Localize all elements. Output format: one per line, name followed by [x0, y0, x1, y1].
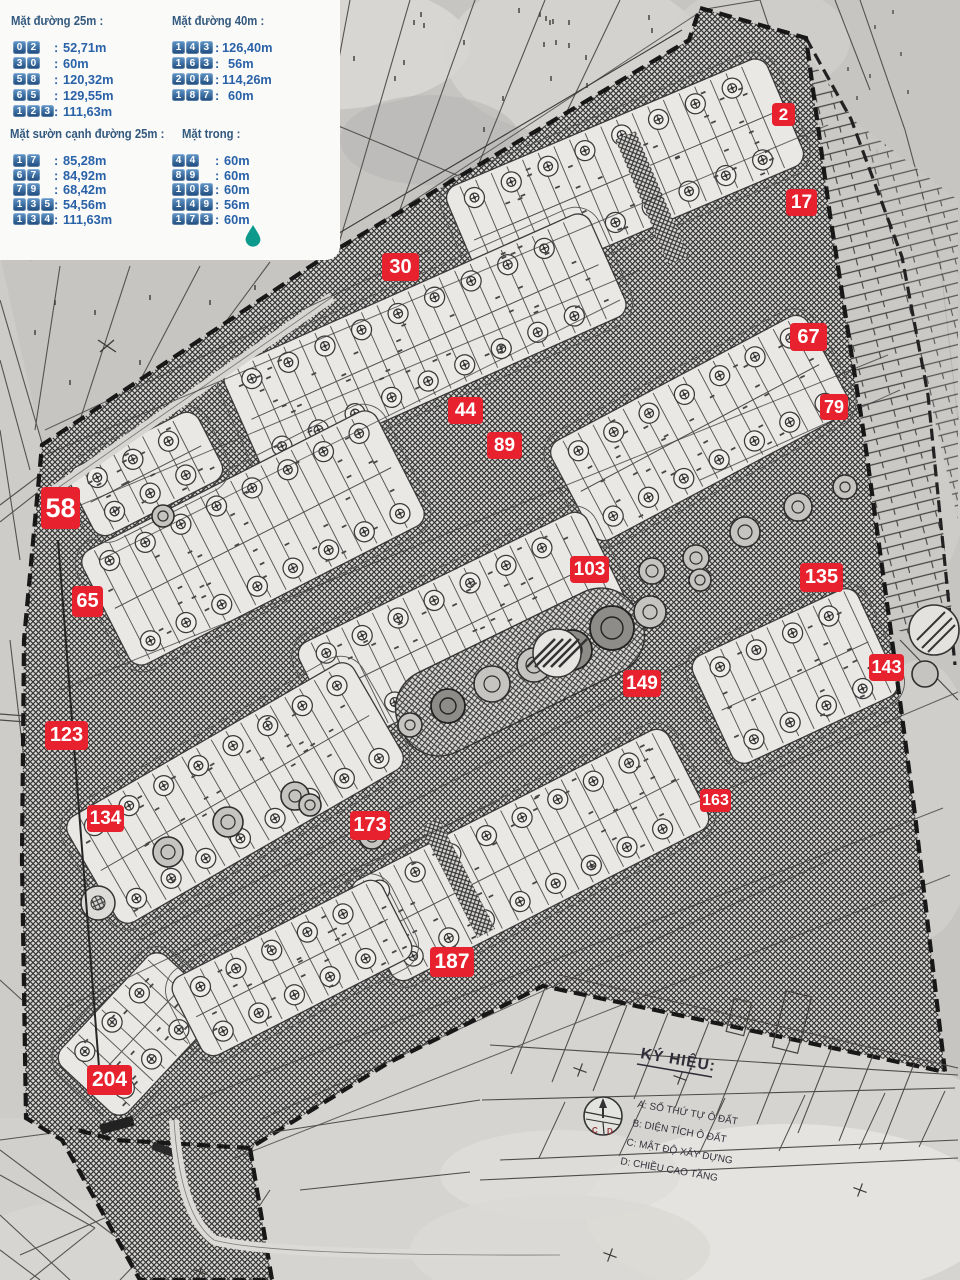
svg-text:D: D [607, 1127, 613, 1136]
svg-text:C: C [592, 1126, 598, 1135]
